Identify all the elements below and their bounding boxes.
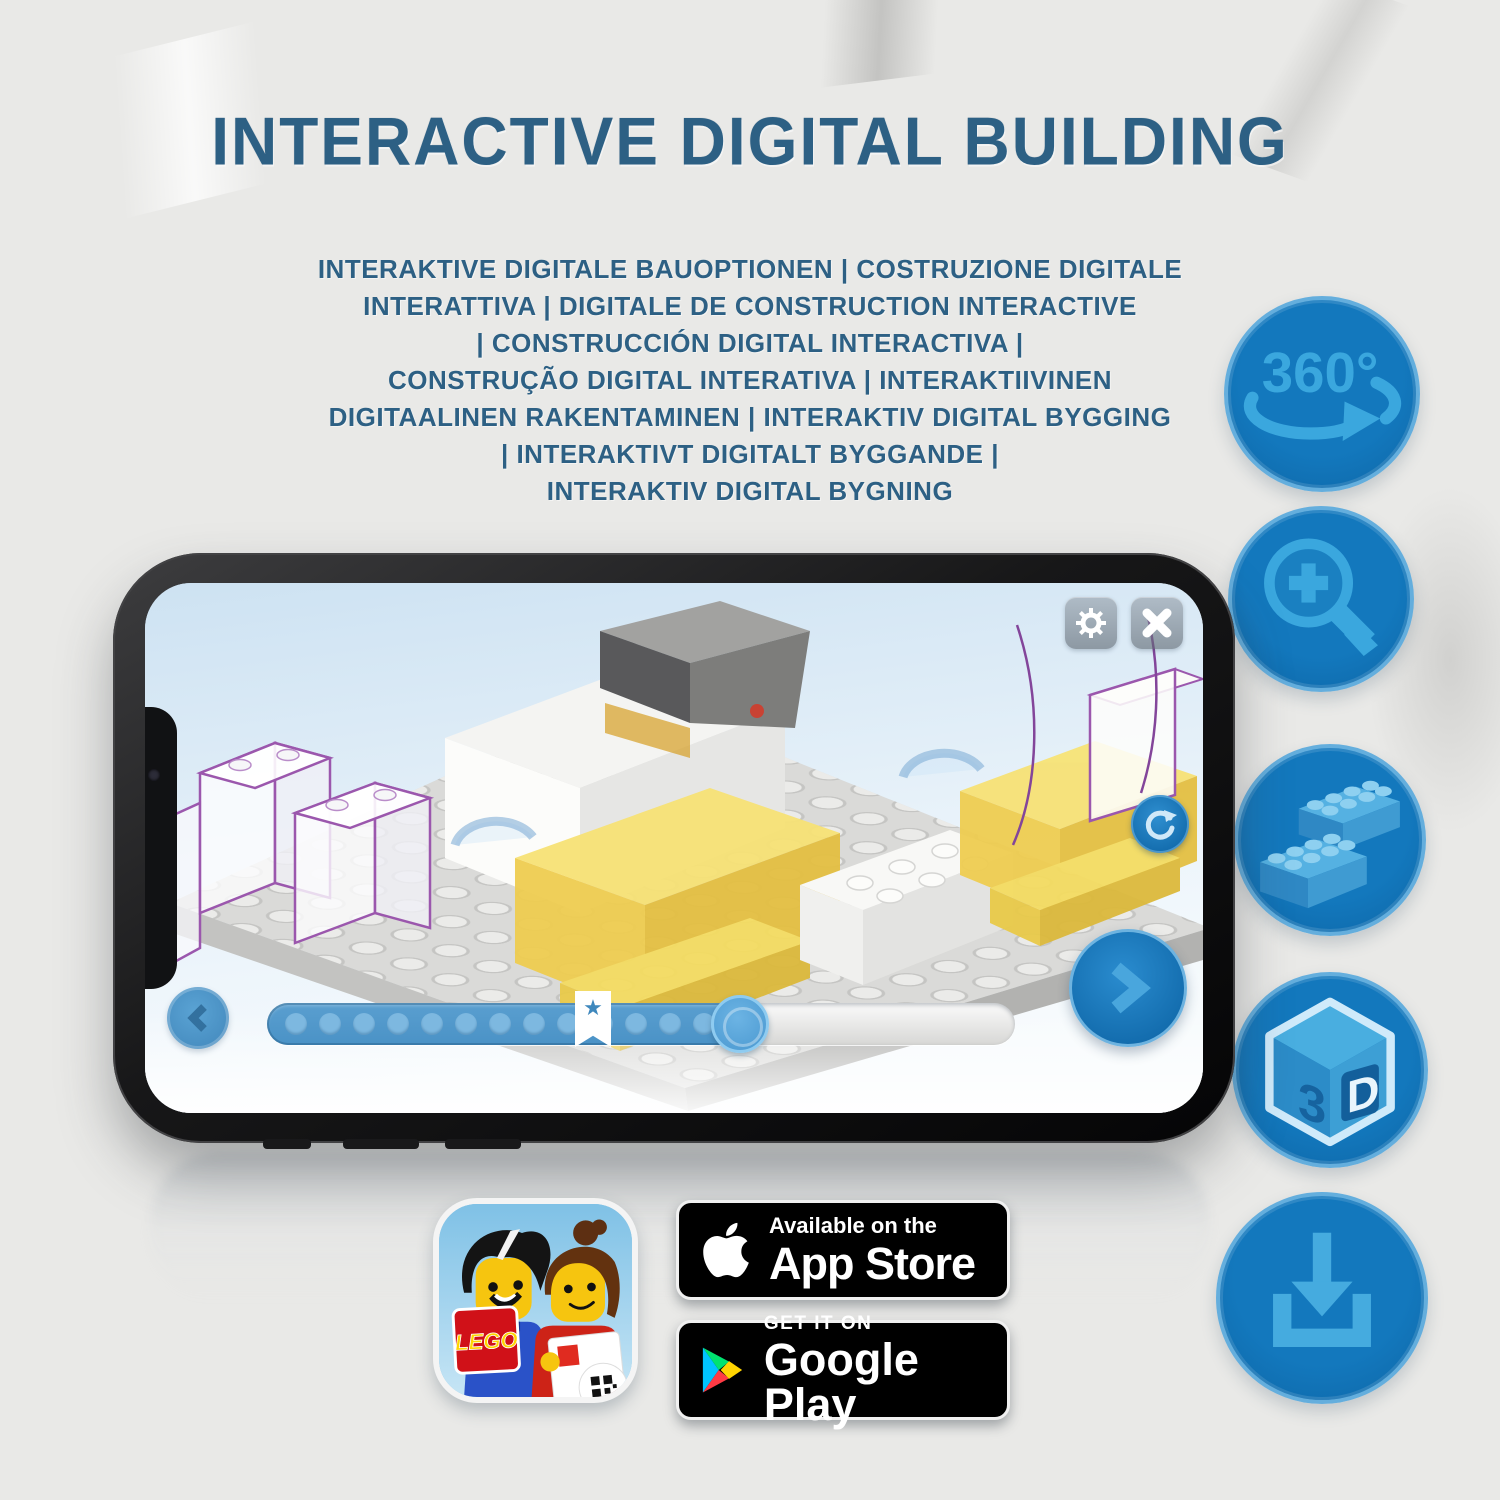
app-store-tagline: Available on the [769, 1215, 975, 1237]
feature-zoom-badge [1228, 506, 1414, 692]
background-texture [597, 0, 1164, 114]
chevron-left-icon [184, 1002, 212, 1034]
progress-dot [353, 1013, 375, 1035]
lego-bricks-icon [1238, 748, 1422, 932]
feature-download-badge [1216, 1192, 1428, 1404]
progress-dot [319, 1013, 341, 1035]
close-button[interactable] [1131, 597, 1183, 649]
gear-icon [1074, 606, 1108, 640]
svg-text:360°: 360° [1262, 341, 1379, 404]
progress-dot [625, 1013, 647, 1035]
rotate-view-button[interactable] [1131, 795, 1189, 853]
zoom-in-icon [1232, 510, 1410, 688]
svg-text:D: D [1347, 1063, 1380, 1123]
feature-360-rotation-badge: 360° [1224, 296, 1420, 492]
3d-cube-icon: 3 D [1236, 976, 1424, 1164]
feature-3d-badge: 3 D [1232, 972, 1428, 1168]
phone-side-button [445, 1139, 521, 1149]
phone-mockup: ★ [113, 553, 1235, 1143]
phone-side-button [343, 1139, 419, 1149]
google-play-name: Google Play [764, 1337, 1007, 1427]
progress-dot [523, 1013, 545, 1035]
lego-app-icon[interactable]: LEGO [433, 1198, 638, 1403]
close-icon [1140, 606, 1174, 640]
progress-dot [489, 1013, 511, 1035]
feature-bricks-badge [1234, 744, 1426, 936]
download-icon [1220, 1196, 1424, 1400]
lego-logo: LEGO [453, 1307, 520, 1374]
progress-dot [421, 1013, 443, 1035]
phone-notch [145, 707, 177, 989]
lego-app-artwork: LEGO [439, 1204, 632, 1397]
rotate-icon [1142, 806, 1178, 842]
google-play-badge[interactable]: GET IT ON Google Play [676, 1320, 1010, 1420]
progress-dot [387, 1013, 409, 1035]
app-store-name: App Store [769, 1241, 975, 1286]
progress-dot [659, 1013, 681, 1035]
progress-dot [285, 1013, 307, 1035]
next-step-button[interactable] [1069, 929, 1187, 1047]
google-play-tagline: GET IT ON [764, 1314, 1007, 1333]
phone-screen: ★ [145, 583, 1203, 1113]
previous-step-button[interactable] [167, 987, 229, 1049]
camera-dot [148, 769, 160, 781]
app-store-badge[interactable]: Available on the App Store [676, 1200, 1010, 1300]
page-title: INTERACTIVE DIGITAL BUILDING [0, 102, 1500, 180]
settings-button[interactable] [1065, 597, 1117, 649]
red-detail [750, 704, 764, 718]
progress-dot [455, 1013, 477, 1035]
apple-icon [701, 1219, 751, 1281]
google-play-icon [701, 1343, 746, 1397]
svg-text:LEGO: LEGO [454, 1327, 518, 1355]
progress-slider-knob[interactable] [711, 995, 769, 1053]
360-rotation-icon: 360° [1228, 300, 1416, 488]
subtitle-line: INTERAKTIVE DIGITALE BAUOPTIONEN | COSTR… [0, 251, 1500, 288]
progress-dots [285, 1013, 715, 1035]
svg-text:3: 3 [1298, 1072, 1326, 1138]
phone-side-button [263, 1139, 311, 1149]
poster-canvas: INTERACTIVE DIGITAL BUILDING INTERAKTIVE… [0, 0, 1500, 1500]
chevron-right-icon [1102, 960, 1154, 1016]
